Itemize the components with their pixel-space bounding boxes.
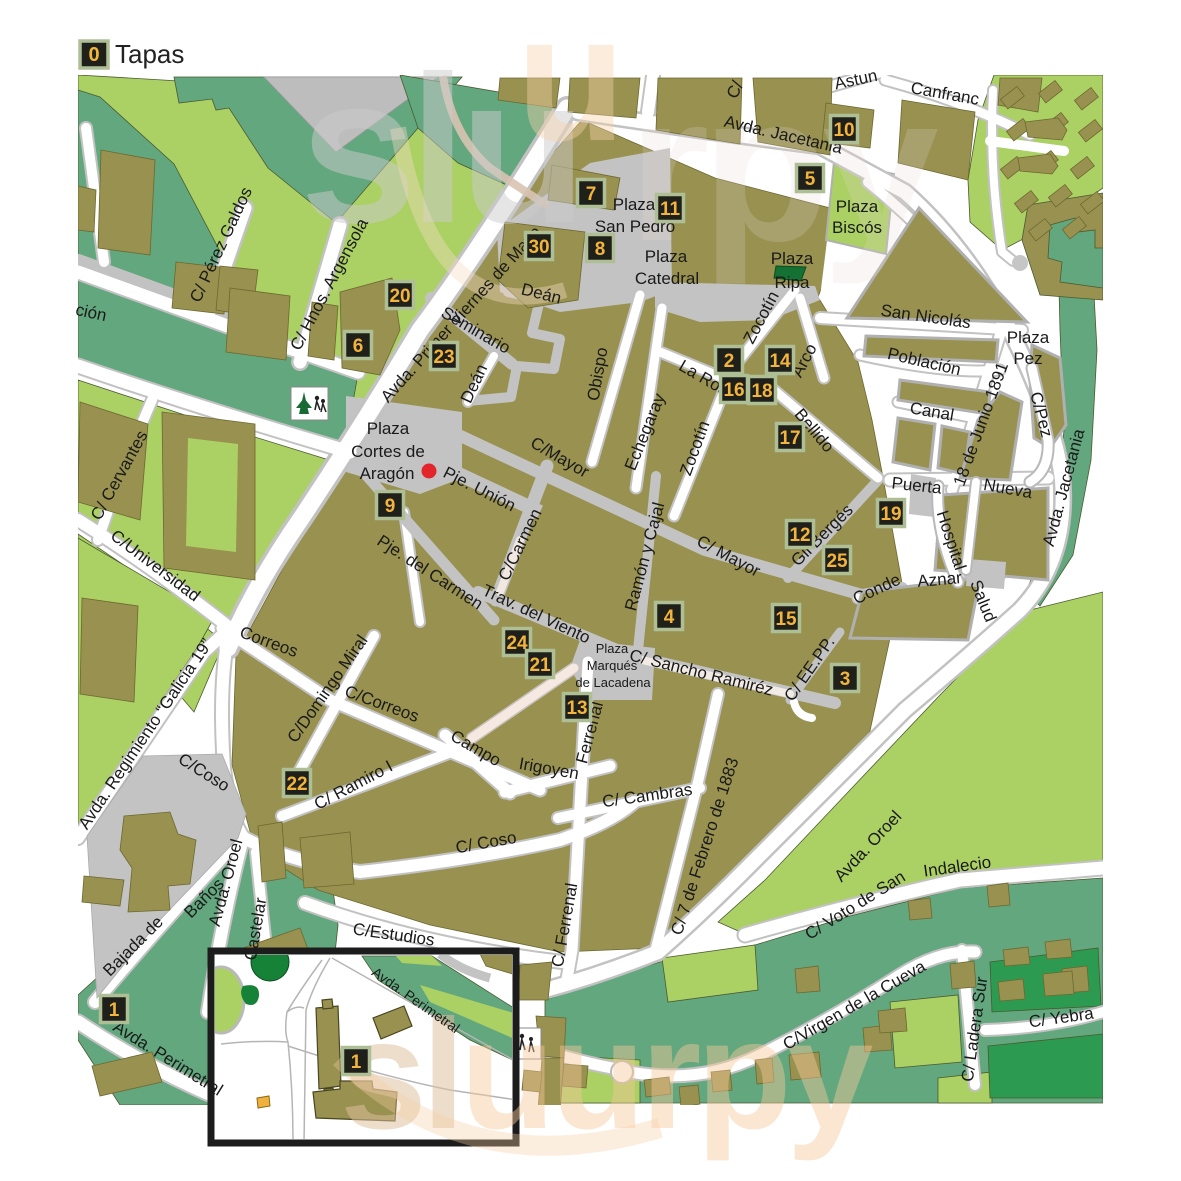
svg-text:15: 15 bbox=[775, 609, 797, 630]
svg-text:17: 17 bbox=[779, 428, 800, 449]
svg-text:3: 3 bbox=[840, 669, 851, 690]
svg-text:Plaza: Plaza bbox=[645, 247, 688, 266]
svg-text:0: 0 bbox=[88, 44, 99, 66]
svg-text:Plaza: Plaza bbox=[367, 419, 410, 438]
svg-text:Plaza: Plaza bbox=[613, 195, 656, 214]
svg-text:6: 6 bbox=[353, 336, 364, 357]
svg-text:14: 14 bbox=[769, 351, 791, 372]
svg-text:Plaza: Plaza bbox=[1007, 328, 1050, 347]
svg-text:de Lacadena: de Lacadena bbox=[575, 675, 651, 690]
svg-text:16: 16 bbox=[723, 380, 744, 401]
svg-text:1: 1 bbox=[351, 1052, 362, 1073]
svg-text:Aragón: Aragón bbox=[360, 464, 415, 483]
svg-text:10: 10 bbox=[833, 120, 854, 141]
svg-text:5: 5 bbox=[805, 169, 816, 190]
svg-text:21: 21 bbox=[529, 655, 551, 676]
svg-text:Catedral: Catedral bbox=[635, 269, 699, 288]
svg-text:23: 23 bbox=[433, 347, 454, 368]
svg-text:Biscós: Biscós bbox=[832, 218, 882, 237]
svg-text:22: 22 bbox=[286, 774, 307, 795]
svg-text:Plaza: Plaza bbox=[596, 641, 629, 656]
svg-text:9: 9 bbox=[385, 496, 396, 517]
svg-text:13: 13 bbox=[566, 698, 587, 719]
svg-text:19: 19 bbox=[880, 504, 901, 525]
svg-text:12: 12 bbox=[789, 525, 810, 546]
svg-text:Pez: Pez bbox=[1013, 349, 1042, 368]
svg-text:Plaza: Plaza bbox=[836, 197, 879, 216]
svg-text:25: 25 bbox=[826, 551, 848, 572]
svg-text:Plaza: Plaza bbox=[771, 249, 814, 268]
svg-text:8: 8 bbox=[595, 239, 606, 260]
svg-text:20: 20 bbox=[389, 286, 410, 307]
svg-text:Cortes de: Cortes de bbox=[351, 442, 425, 461]
svg-text:2: 2 bbox=[724, 351, 735, 372]
svg-text:Aznar: Aznar bbox=[917, 568, 963, 591]
svg-text:7: 7 bbox=[586, 184, 597, 205]
svg-text:18: 18 bbox=[751, 381, 772, 402]
svg-text:u: u bbox=[516, 0, 618, 179]
svg-text:4: 4 bbox=[664, 607, 675, 628]
svg-text:1: 1 bbox=[109, 1000, 120, 1021]
svg-text:Ripa: Ripa bbox=[775, 273, 811, 292]
svg-text:30: 30 bbox=[528, 237, 549, 258]
svg-text:Tapas: Tapas bbox=[115, 39, 184, 69]
svg-text:11: 11 bbox=[660, 199, 681, 220]
